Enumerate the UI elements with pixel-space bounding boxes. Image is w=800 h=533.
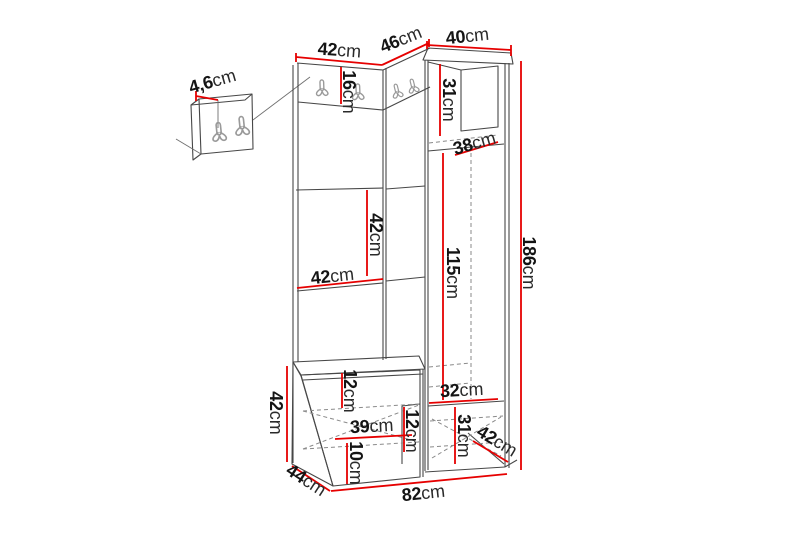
label-mid-shelf-width: 42cm xyxy=(310,264,355,288)
coat-hook-icon xyxy=(211,122,226,142)
label-base-width: 82cm xyxy=(401,481,446,505)
corner-section xyxy=(383,48,430,281)
coat-hook-icon xyxy=(316,80,328,96)
label-bench-height: 42cm xyxy=(266,391,286,434)
screenshot: 42cm 46cm 40cm 4,6cm 16cm 31cm 38cm 42cm… xyxy=(0,0,800,533)
label-bench-bottom-height: 10cm xyxy=(346,441,366,484)
label-lower-compartment-height: 31cm xyxy=(454,414,474,457)
label-upper-compartment-depth: 38cm xyxy=(451,128,498,159)
furniture-dimension-diagram: 42cm 46cm 40cm 4,6cm 16cm 31cm 38cm 42cm… xyxy=(0,0,800,533)
label-total-height: 186cm xyxy=(519,236,539,289)
label-door-height: 115cm xyxy=(443,247,463,299)
label-bench-inner-width: 39cm xyxy=(349,415,393,437)
coat-hook-icon xyxy=(390,83,403,99)
callout-leader-line xyxy=(253,77,310,120)
label-bench-depth: 44cm xyxy=(283,460,330,500)
label-side-gap-height: 12cm xyxy=(402,409,422,452)
label-bench-top-height: 12cm xyxy=(340,369,360,412)
label-top-width-left: 42cm xyxy=(317,39,362,62)
label-hook-strip-height: 16cm xyxy=(339,70,359,113)
tall-cabinet xyxy=(423,48,517,472)
label-top-width-corner: 46cm xyxy=(377,22,425,57)
label-top-width-right: 40cm xyxy=(445,24,490,48)
label-upper-compartment-height: 31cm xyxy=(439,78,459,121)
coat-hook-icon xyxy=(406,78,419,94)
label-lower-shelf-width: 32cm xyxy=(439,379,483,401)
wall-panel-left-section xyxy=(293,63,386,463)
coat-hook-icon xyxy=(234,116,249,136)
label-panel-thickness: 4,6cm xyxy=(186,65,238,97)
panel-edge-line xyxy=(176,139,201,154)
label-mid-section-height: 42cm xyxy=(366,213,386,256)
